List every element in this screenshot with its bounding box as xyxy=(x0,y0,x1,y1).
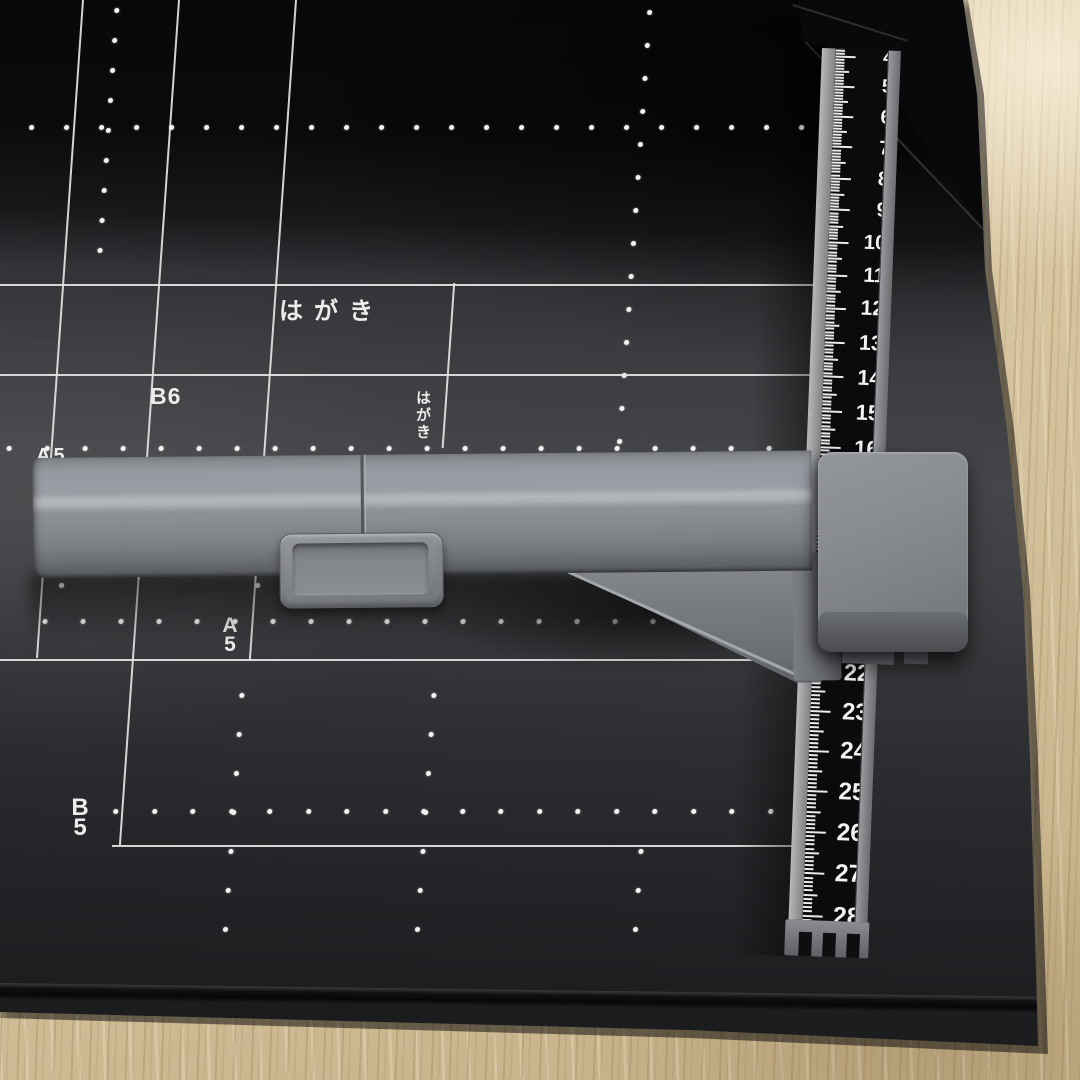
arm-grip-handle[interactable] xyxy=(279,532,444,609)
slider-block-bevel xyxy=(818,612,968,652)
slider-rail-tab xyxy=(904,651,928,665)
handle-recess xyxy=(292,542,428,595)
paper-trimmer-photo: はがきB6はがきA5B5A5 4567891011121314151617181… xyxy=(0,0,1080,1080)
